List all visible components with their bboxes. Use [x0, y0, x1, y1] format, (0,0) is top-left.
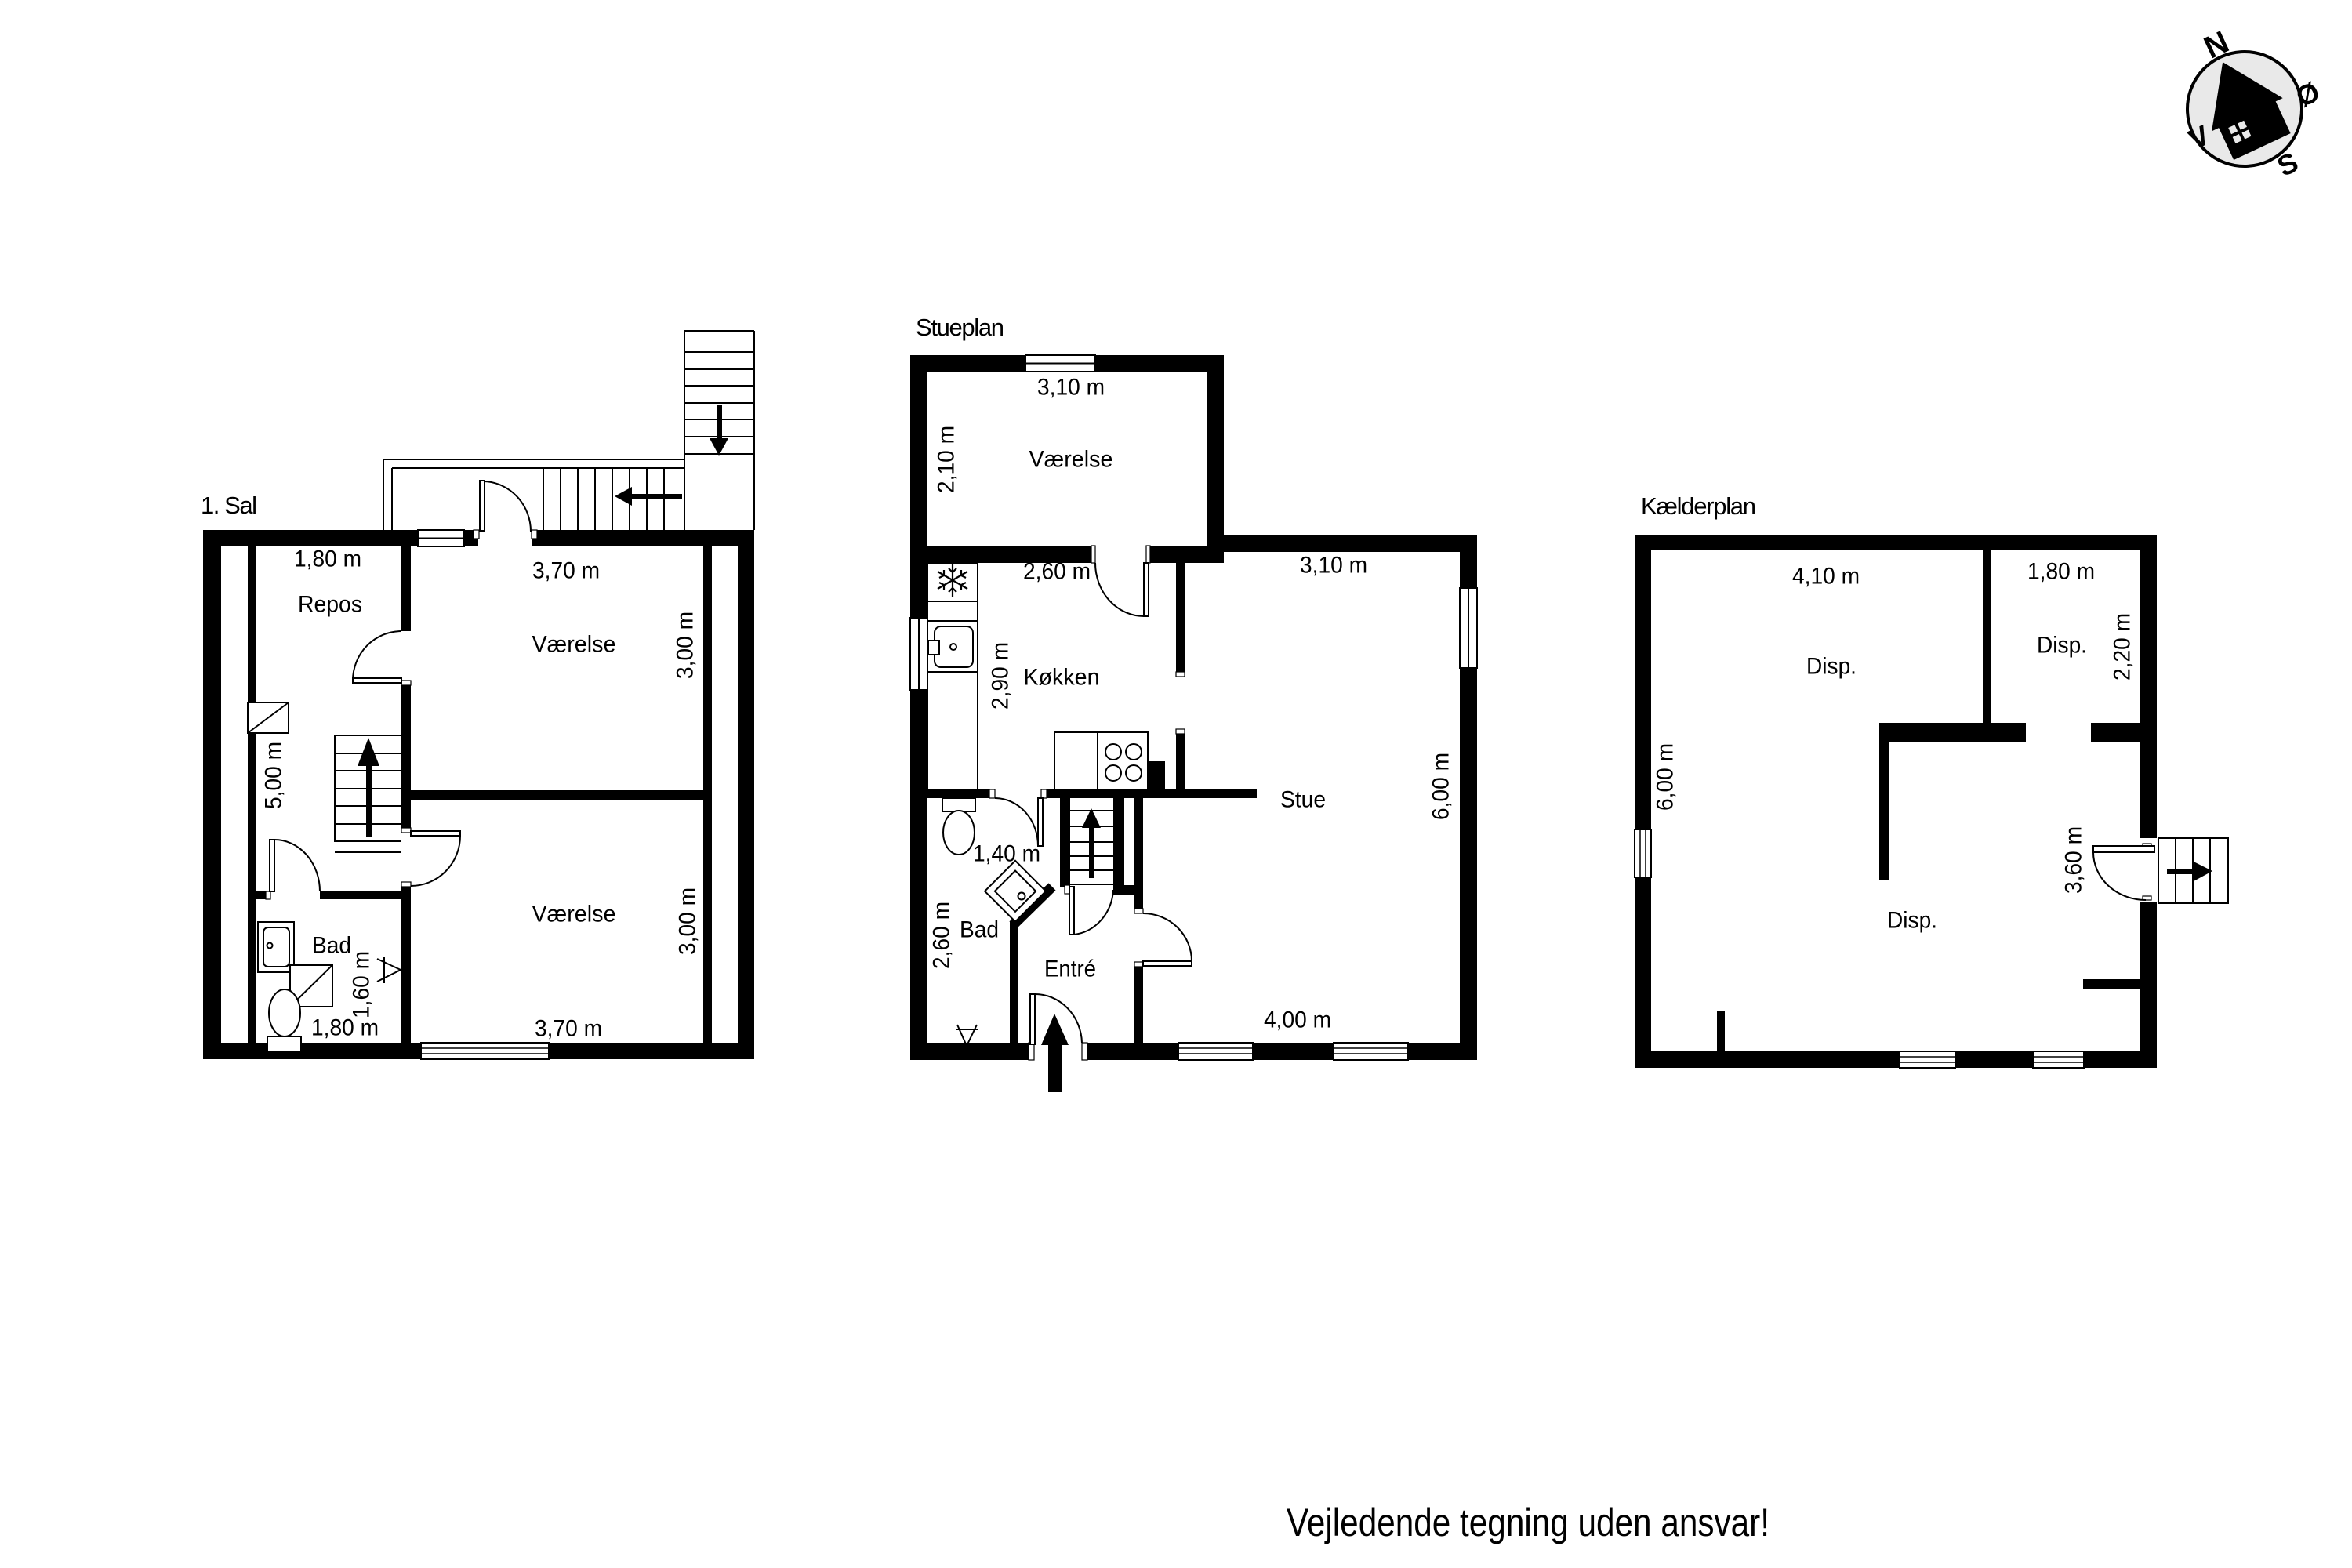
- svg-text:4,00 m: 4,00 m: [1264, 1007, 1331, 1033]
- svg-text:Repos: Repos: [298, 592, 362, 618]
- svg-text:2,60 m: 2,60 m: [929, 902, 955, 969]
- svg-text:1,40 m: 1,40 m: [973, 841, 1040, 867]
- svg-text:2,60 m: 2,60 m: [1023, 559, 1091, 585]
- svg-text:Disp.: Disp.: [1887, 908, 1937, 934]
- svg-text:2,10 m: 2,10 m: [934, 426, 960, 493]
- svg-text:1,80 m: 1,80 m: [311, 1015, 379, 1041]
- svg-text:1,80 m: 1,80 m: [2027, 559, 2095, 585]
- svg-text:2,90 m: 2,90 m: [988, 642, 1014, 710]
- svg-text:Stueplan: Stueplan: [916, 314, 1004, 341]
- svg-text:Kælderplan: Kælderplan: [1641, 492, 1756, 520]
- svg-text:Disp.: Disp.: [1806, 654, 1857, 680]
- svg-text:Vejledende tegning uden ansvar: Vejledende tegning uden ansvar!: [1287, 1501, 1769, 1544]
- svg-text:Stue: Stue: [1280, 787, 1326, 813]
- svg-text:3,70 m: 3,70 m: [535, 1016, 602, 1042]
- svg-text:3,10 m: 3,10 m: [1300, 553, 1367, 579]
- svg-text:Bad: Bad: [960, 917, 999, 943]
- svg-text:3,70 m: 3,70 m: [532, 558, 600, 584]
- svg-text:1,80 m: 1,80 m: [294, 546, 361, 572]
- svg-text:Værelse: Værelse: [532, 902, 616, 927]
- svg-text:6,00 m: 6,00 m: [1653, 743, 1679, 811]
- svg-text:2,20 m: 2,20 m: [2110, 613, 2136, 681]
- svg-text:6,00 m: 6,00 m: [1428, 753, 1454, 820]
- svg-text:3,10 m: 3,10 m: [1037, 375, 1105, 401]
- svg-text:1,60 m: 1,60 m: [349, 951, 375, 1018]
- svg-text:4,10 m: 4,10 m: [1792, 564, 1860, 590]
- svg-text:3,00 m: 3,00 m: [675, 887, 701, 955]
- svg-text:Entré: Entré: [1044, 956, 1096, 982]
- svg-text:Bad: Bad: [312, 933, 351, 959]
- svg-text:3,00 m: 3,00 m: [673, 612, 699, 679]
- svg-text:Værelse: Værelse: [1029, 447, 1113, 473]
- svg-text:5,00 m: 5,00 m: [261, 742, 287, 809]
- svg-text:Værelse: Værelse: [532, 632, 616, 658]
- svg-text:1. Sal: 1. Sal: [201, 492, 257, 519]
- svg-text:3,60 m: 3,60 m: [2061, 826, 2087, 894]
- svg-text:Køkken: Køkken: [1024, 665, 1100, 691]
- svg-text:Disp.: Disp.: [2037, 633, 2087, 659]
